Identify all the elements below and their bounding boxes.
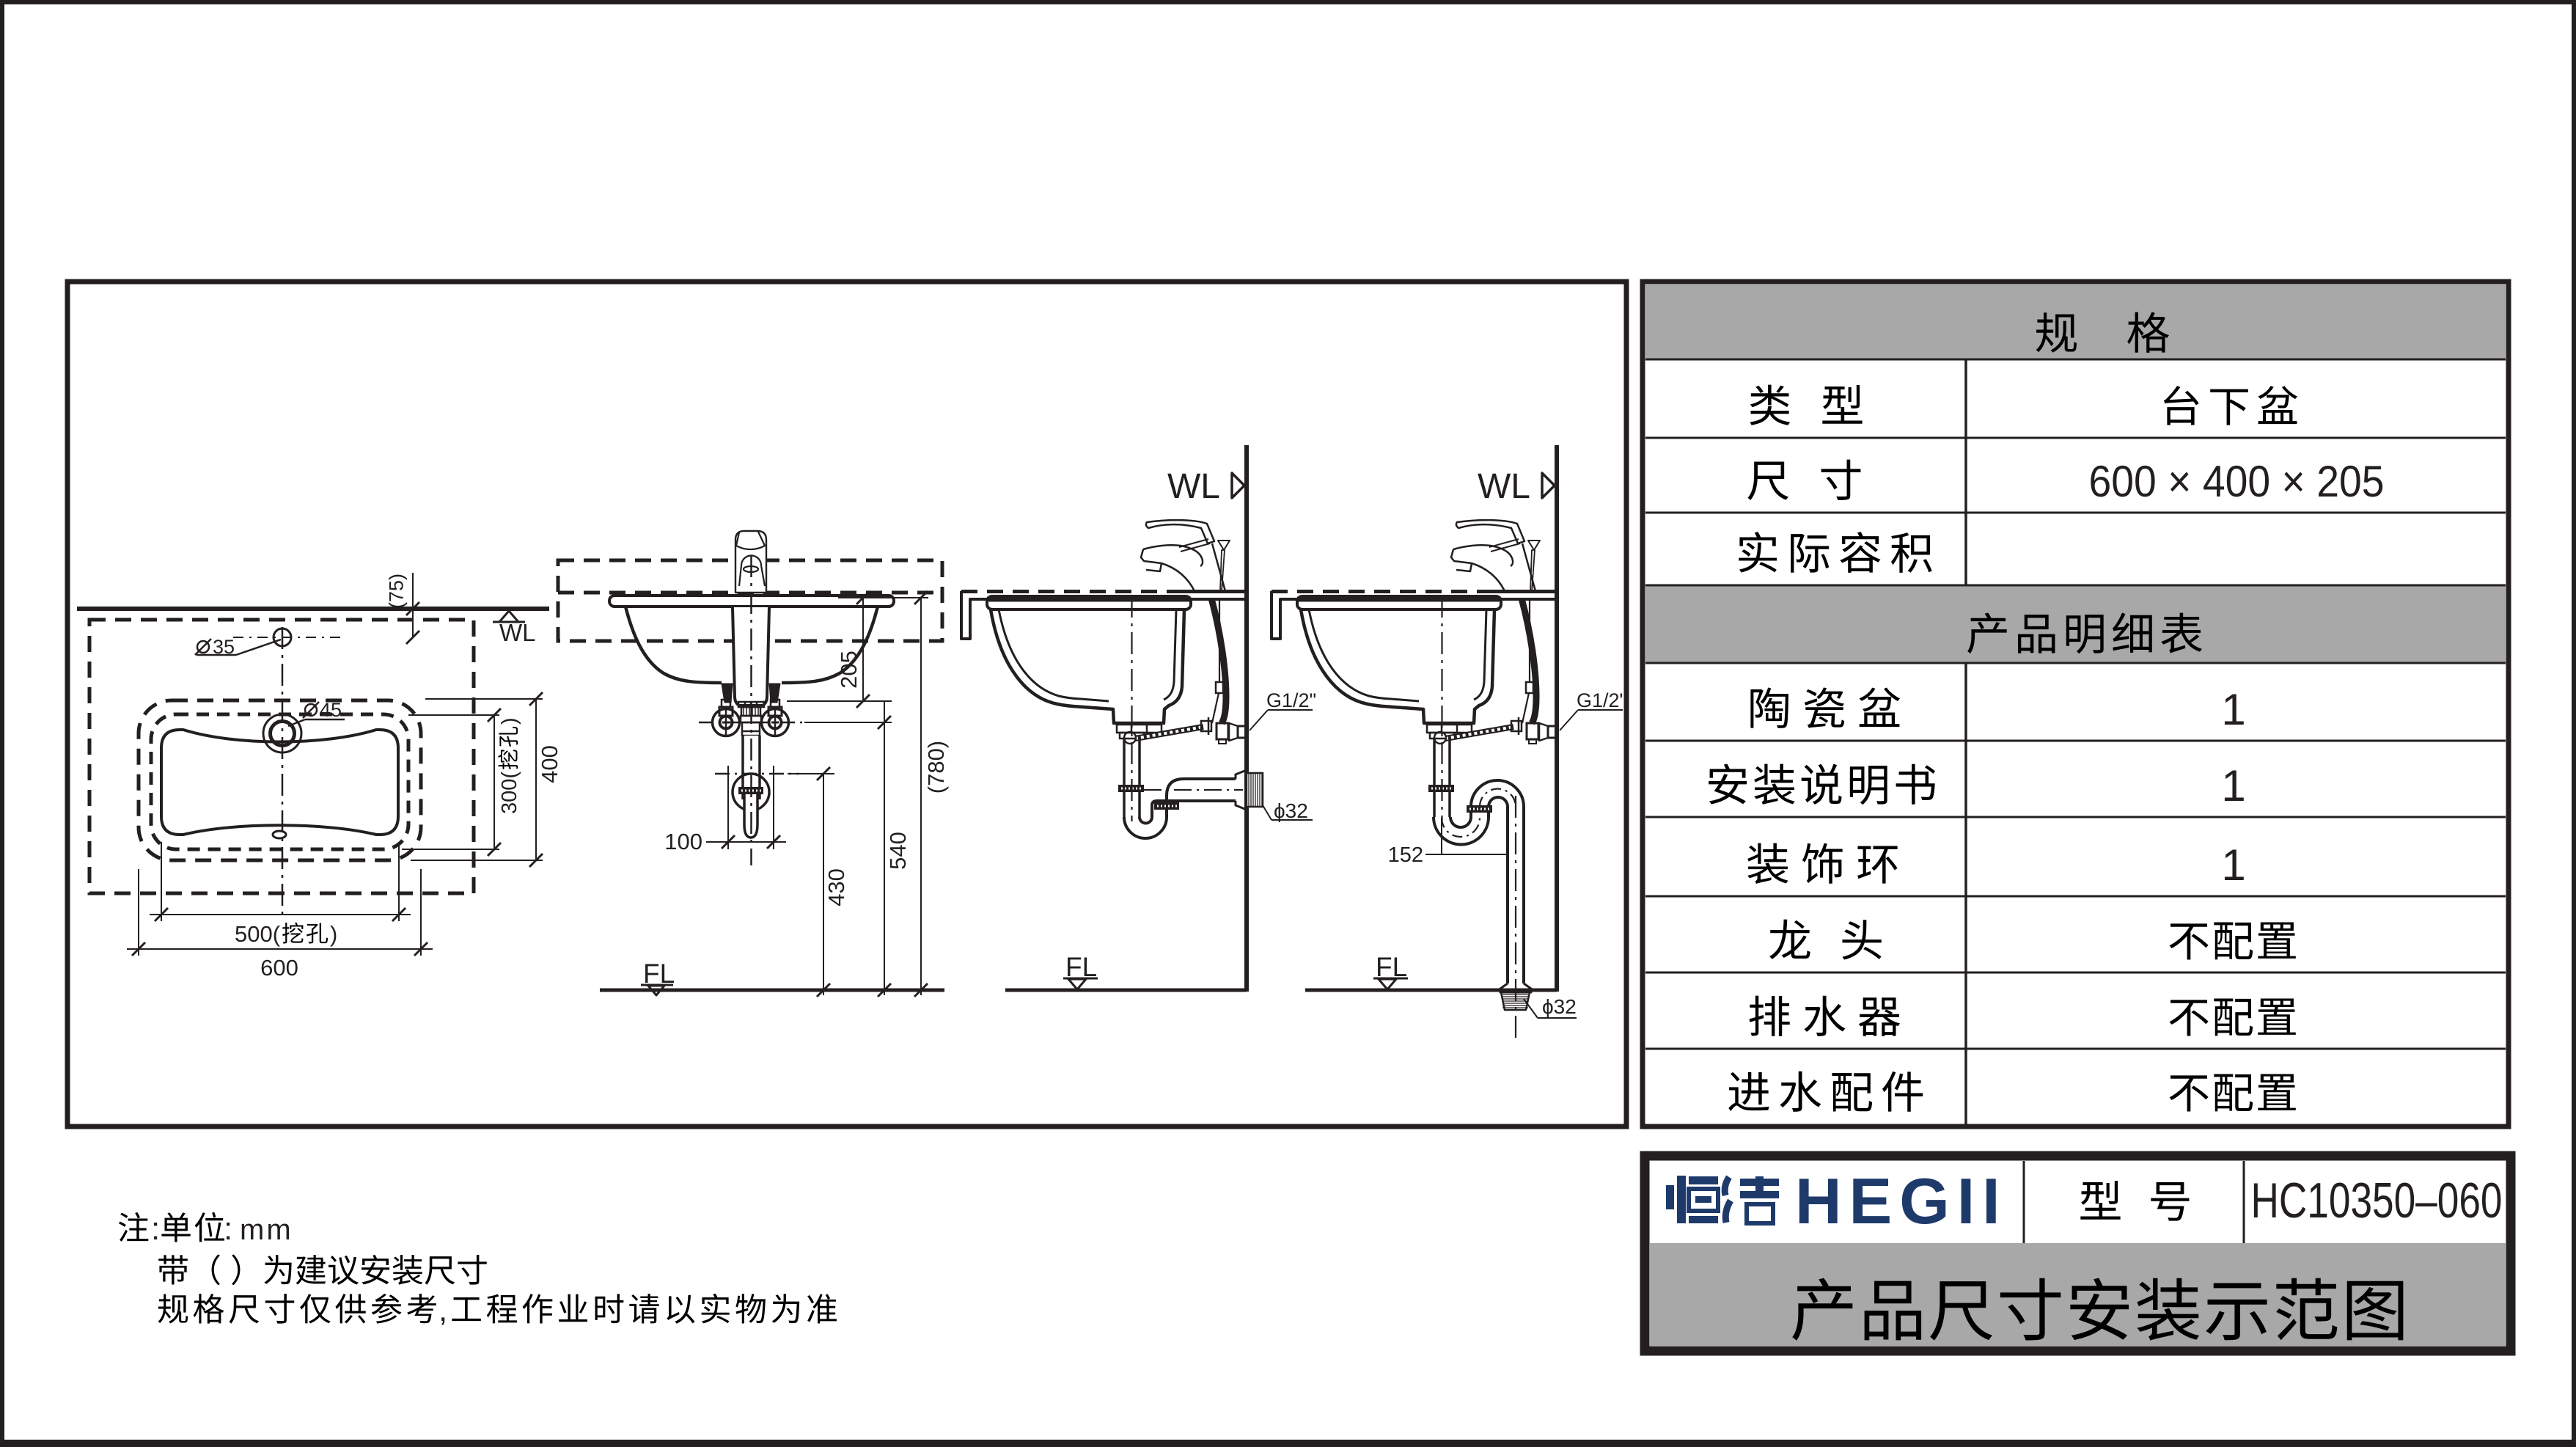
svg-text:(780): (780) xyxy=(923,741,949,794)
svg-text:ϕ32: ϕ32 xyxy=(1542,995,1577,1018)
svg-text:): ) xyxy=(330,921,337,947)
svg-text:152: 152 xyxy=(1388,843,1423,867)
svg-text:HC10350–060: HC10350–060 xyxy=(2251,1173,2503,1228)
svg-text::: : xyxy=(151,1211,160,1247)
svg-text:): ) xyxy=(498,717,521,725)
svg-text:mm: mm xyxy=(240,1214,293,1246)
svg-text:400: 400 xyxy=(537,745,562,783)
svg-text:1: 1 xyxy=(2221,761,2245,810)
svg-text:300(: 300( xyxy=(498,772,521,814)
svg-text:600: 600 xyxy=(260,955,298,981)
svg-text:G1/2": G1/2" xyxy=(1577,689,1626,711)
svg-text:205: 205 xyxy=(836,651,862,689)
svg-text:540: 540 xyxy=(885,832,911,870)
svg-text:45: 45 xyxy=(320,699,342,721)
svg-text:1: 1 xyxy=(2221,685,2245,734)
svg-text:WL: WL xyxy=(1167,467,1220,506)
svg-text:WL: WL xyxy=(499,619,536,646)
svg-text:WL: WL xyxy=(1478,467,1530,506)
svg-text:430: 430 xyxy=(823,868,849,906)
svg-text:1: 1 xyxy=(2221,840,2245,890)
svg-text:100: 100 xyxy=(664,829,702,854)
svg-text:ϕ32: ϕ32 xyxy=(1274,799,1308,822)
svg-text:35: 35 xyxy=(213,636,235,658)
svg-text:(75): (75) xyxy=(385,574,407,609)
svg-text:600 × 400 × 205: 600 × 400 × 205 xyxy=(2089,457,2385,506)
svg-text:G1/2": G1/2" xyxy=(1266,689,1316,711)
svg-text::: : xyxy=(224,1211,232,1247)
svg-text:,: , xyxy=(438,1292,447,1328)
svg-text:500(: 500( xyxy=(235,921,281,947)
svg-text:HEGII: HEGII xyxy=(1795,1165,2008,1237)
